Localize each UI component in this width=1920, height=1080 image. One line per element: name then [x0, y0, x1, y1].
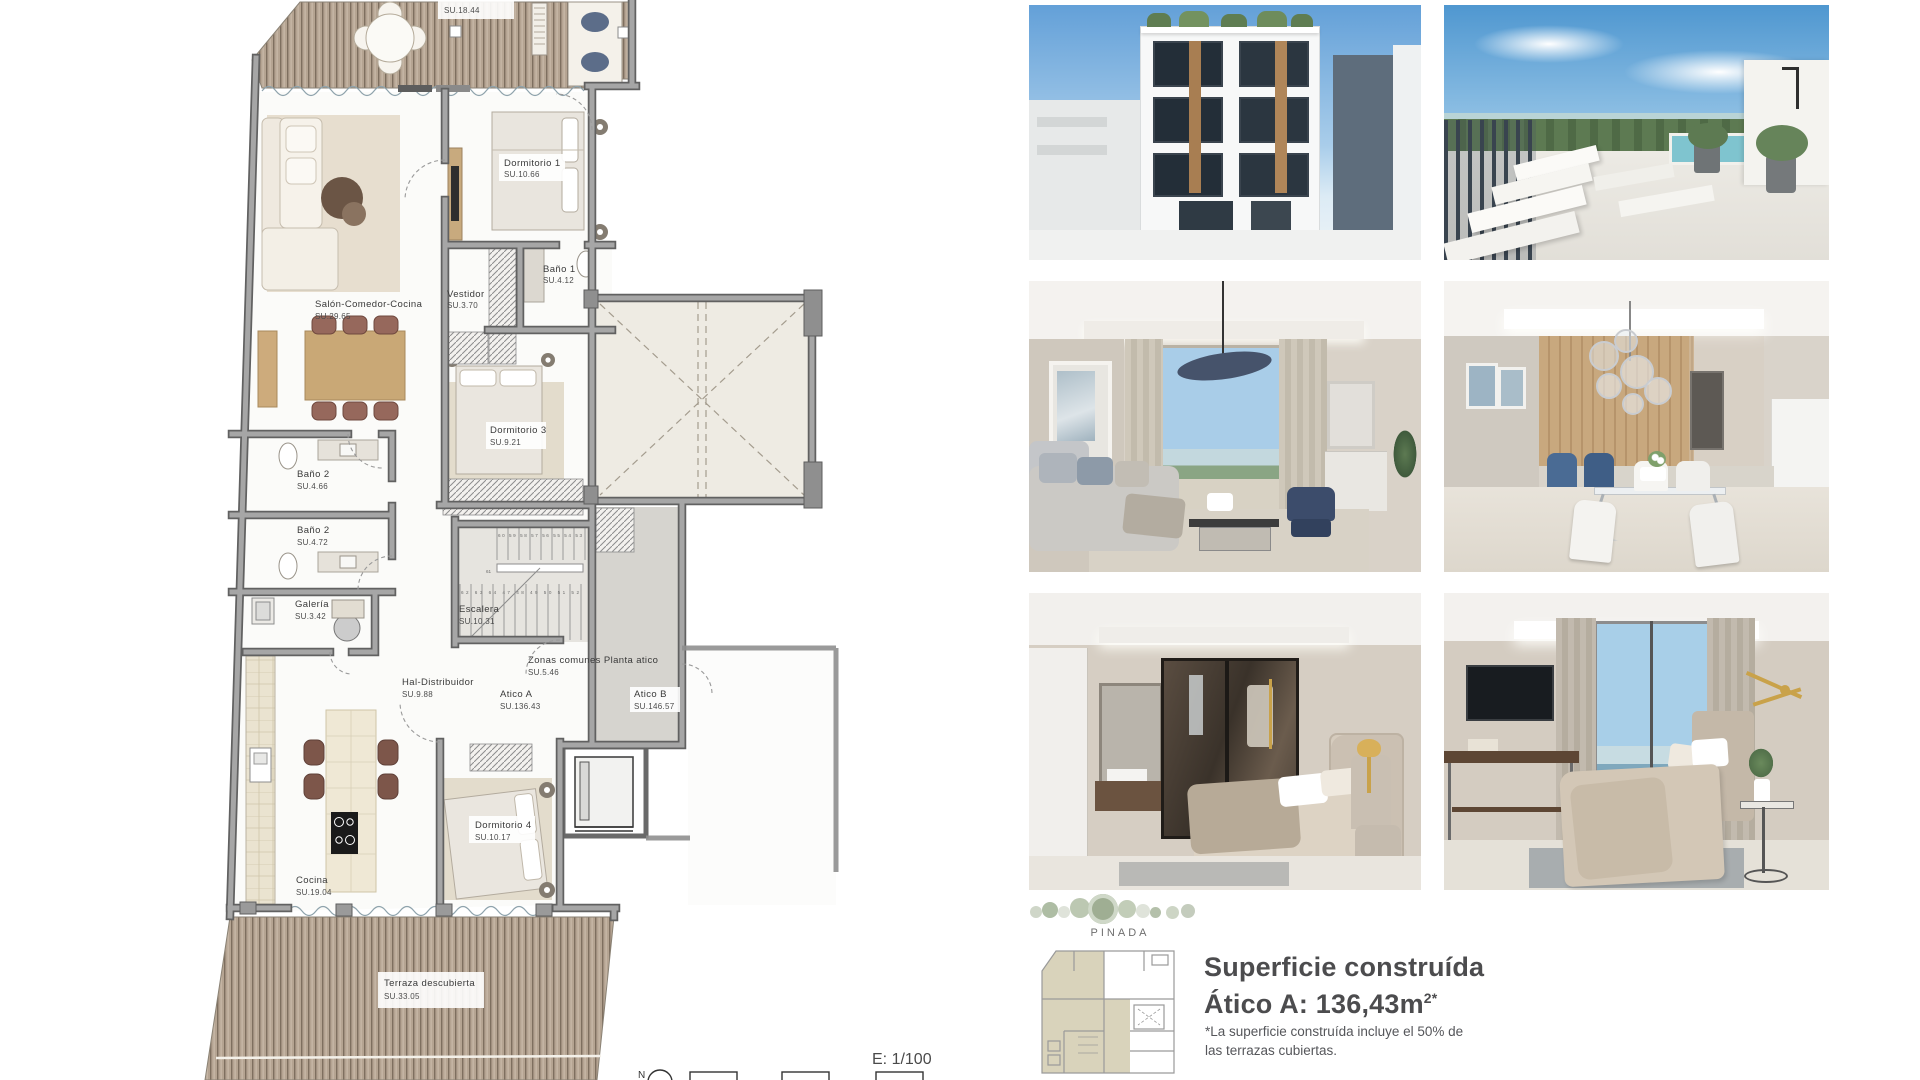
photo-rooftop-terrace [1444, 5, 1829, 260]
floor-plan: 60 59 58 57 56 55 54 53 61 62 63 64 47 4… [0, 0, 1000, 1080]
svg-text:SU.4.72: SU.4.72 [297, 538, 328, 547]
svg-text:SU.136.43: SU.136.43 [500, 702, 541, 711]
photo-bedroom-walkin [1029, 593, 1421, 890]
svg-text:SU.9.88: SU.9.88 [402, 690, 433, 699]
room-label-atico-b: Atico B [634, 689, 667, 700]
room-label-terraza: Terraza descubierta [384, 978, 475, 989]
photo-bedroom-view [1444, 593, 1829, 890]
svg-text:SU.3.42: SU.3.42 [295, 612, 326, 621]
doormat [596, 508, 634, 552]
brand-garland-icon [1028, 894, 1198, 926]
room-label-bano2b: Baño 2 [297, 525, 330, 536]
svg-text:SU.19.04: SU.19.04 [296, 888, 332, 897]
svg-text:SU.146.57: SU.146.57 [634, 702, 675, 711]
svg-text:SU.29.65: SU.29.65 [315, 312, 351, 321]
elevator [563, 747, 646, 836]
north-label: N [638, 1070, 645, 1080]
svg-text:SU.4.12: SU.4.12 [543, 276, 574, 285]
svg-text:SU.10.17: SU.10.17 [475, 833, 511, 842]
svg-text:SU.10.31: SU.10.31 [459, 617, 495, 626]
scale-bar-icon [690, 1072, 923, 1080]
svg-text:SU.3.70: SU.3.70 [447, 301, 478, 310]
plan-footer: E: 1/100 N [638, 1051, 932, 1080]
surface-title-line2: Ático A: 136,43m2* [1204, 983, 1484, 1020]
surface-title: Superficie construída Ático A: 136,43m2* [1204, 952, 1484, 1020]
north-compass-icon [648, 1070, 672, 1080]
room-label-bano1: Baño 1 [543, 264, 576, 275]
scale-label: E: 1/100 [872, 1051, 932, 1068]
room-label-escalera: Escalera [459, 604, 499, 615]
stair-number-landing: 61 [486, 569, 492, 574]
svg-text:SU.33.05: SU.33.05 [384, 992, 420, 1001]
surface-note: *La superficie construída incluye el 50%… [1205, 1022, 1463, 1060]
atico-b-floor [688, 650, 836, 905]
brand-name: PINADA [1060, 927, 1180, 939]
skylight-patio [596, 300, 808, 499]
svg-text:SU.9.21: SU.9.21 [490, 438, 521, 447]
room-label-dorm4: Dormitorio 4 [475, 820, 532, 831]
key-plan [1034, 941, 1186, 1080]
svg-text:SU.5.46: SU.5.46 [528, 668, 559, 677]
room-label-hal: Hal-Distribuidor [402, 677, 474, 688]
room-label-terrace-top: SU.18.44 [444, 6, 480, 15]
room-label-bano2a: Baño 2 [297, 469, 330, 480]
room-label-galeria: Galería [295, 599, 329, 610]
stair-numbers-top: 60 59 58 57 56 55 54 53 [498, 533, 582, 538]
room-label-atico-a: Atico A [500, 689, 533, 700]
room-label-dorm1: Dormitorio 1 [504, 158, 561, 169]
photo-dining-kitchen [1444, 281, 1829, 572]
room-label-zonas: Zonas comunes Planta atico [528, 655, 658, 666]
room-label-cocina: Cocina [296, 875, 328, 886]
brochure-page: 60 59 58 57 56 55 54 53 61 62 63 64 47 4… [0, 0, 1920, 1080]
photo-exterior-facade [1029, 5, 1421, 260]
room-label-salon: Salón-Comedor-Cocina [315, 299, 423, 310]
sliding-door [398, 85, 432, 92]
svg-text:SU.4.66: SU.4.66 [297, 482, 328, 491]
surface-title-line1: Superficie construída [1204, 952, 1484, 983]
room-label-vestidor: Vestidor [447, 289, 485, 300]
room-label-dorm3: Dormitorio 3 [490, 425, 547, 436]
svg-text:SU.10.66: SU.10.66 [504, 170, 540, 179]
photo-living-room [1029, 281, 1421, 572]
